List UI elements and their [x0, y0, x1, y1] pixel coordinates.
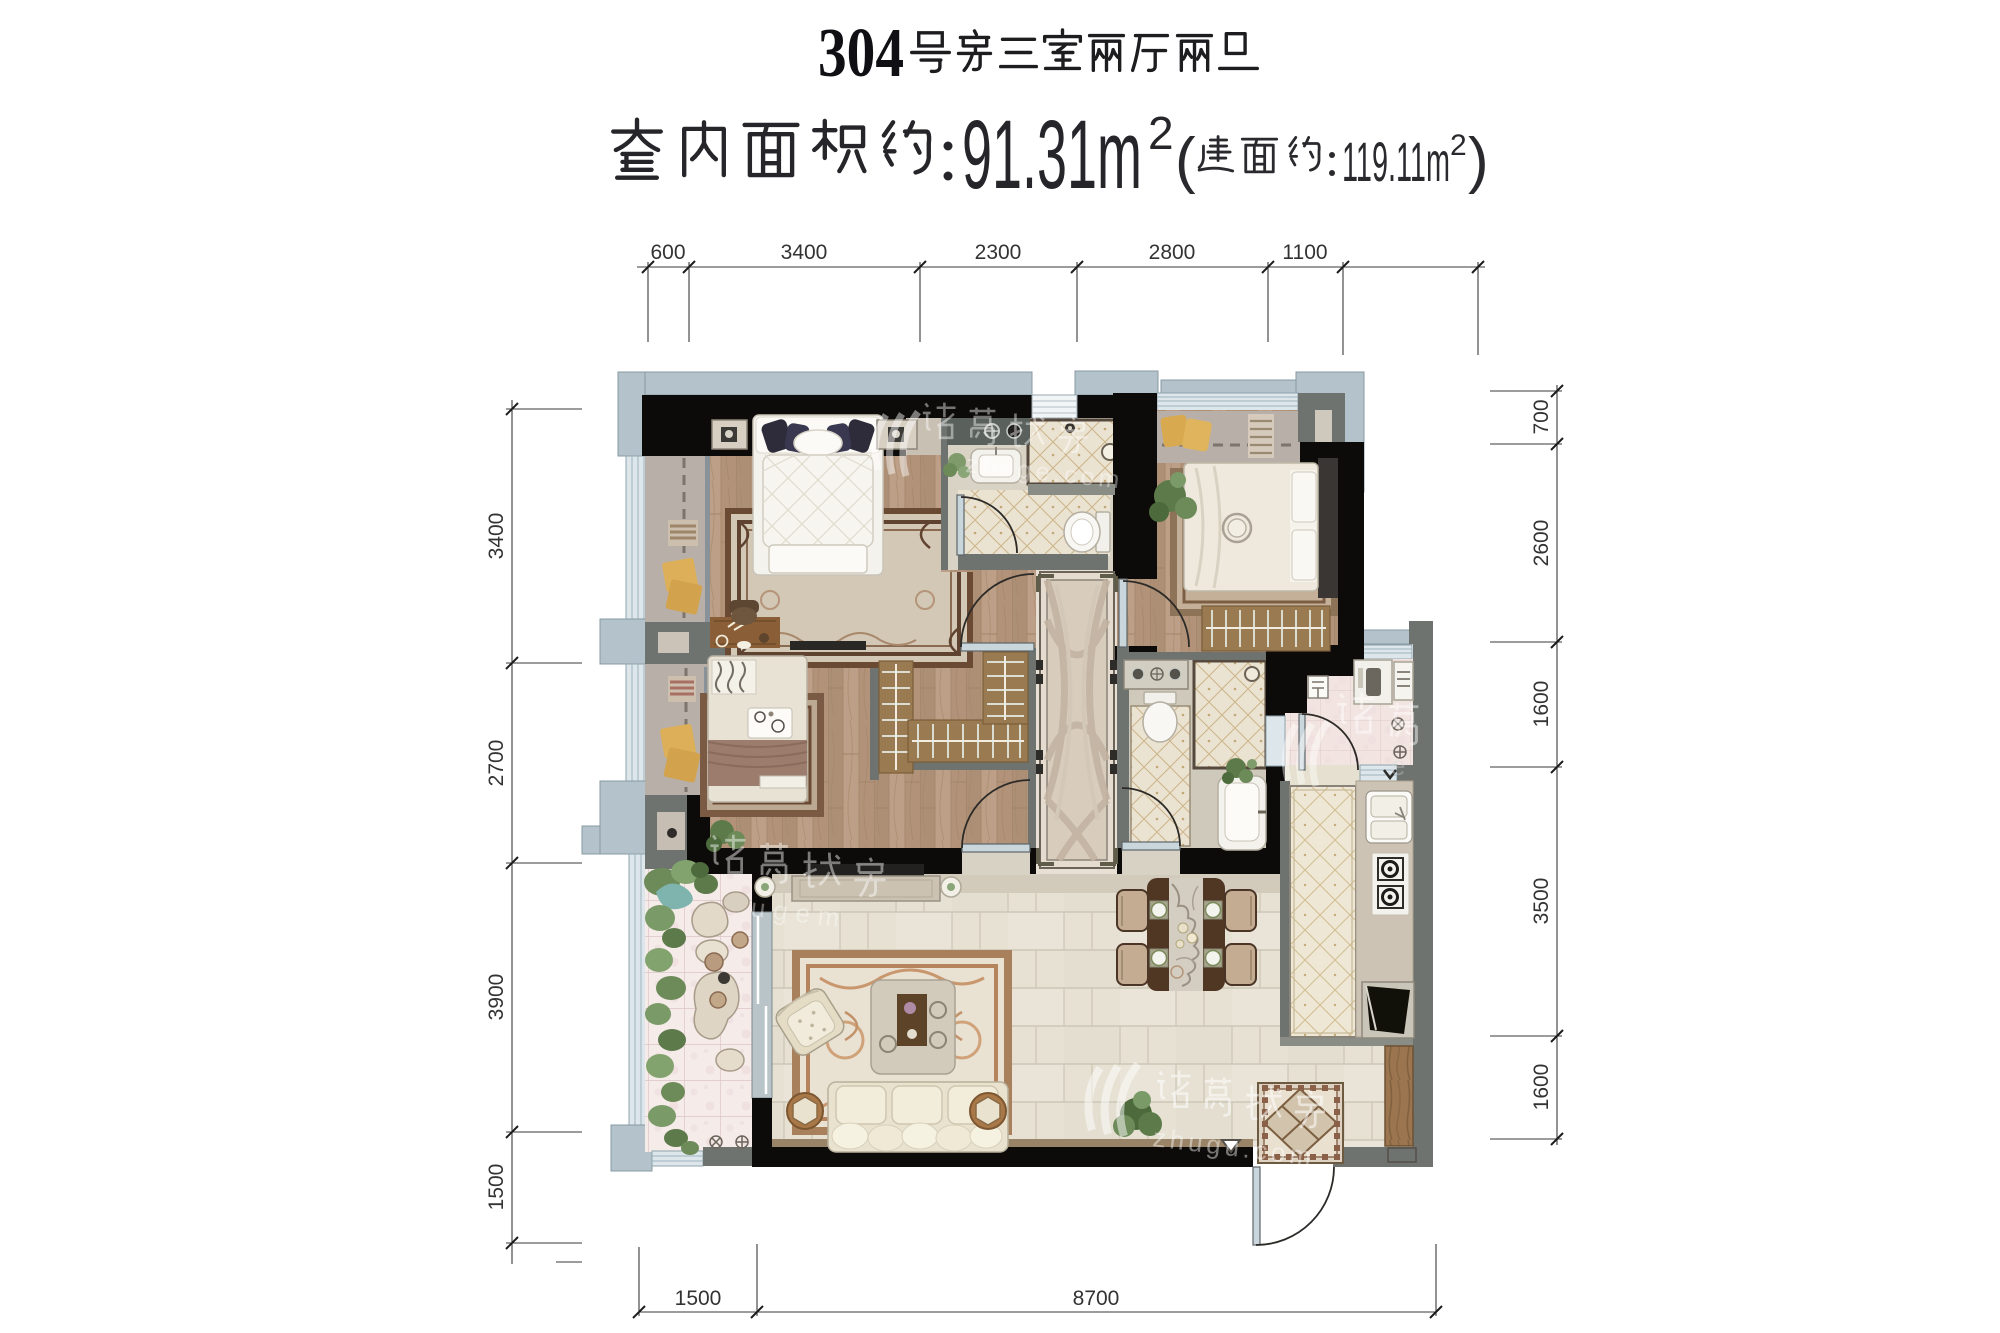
svg-text:1600: 1600: [1530, 681, 1553, 728]
svg-text:2: 2: [1450, 129, 1467, 162]
svg-text:2300: 2300: [975, 241, 1022, 264]
svg-text:3400: 3400: [485, 513, 508, 560]
svg-text:91.31m: 91.31m: [962, 100, 1142, 209]
svg-text:1500: 1500: [675, 1287, 722, 1310]
svg-text:2600: 2600: [1530, 520, 1553, 567]
svg-text:1600: 1600: [1530, 1064, 1553, 1111]
svg-text:1500: 1500: [485, 1164, 508, 1211]
svg-text:8700: 8700: [1073, 1287, 1120, 1310]
svg-text:2: 2: [1148, 107, 1174, 159]
svg-text:3500: 3500: [1530, 878, 1553, 925]
svg-text:304: 304: [818, 15, 904, 92]
svg-text:2800: 2800: [1149, 241, 1196, 264]
svg-text:1100: 1100: [1282, 241, 1327, 264]
svg-text:(: (: [1175, 126, 1196, 195]
svg-text:600: 600: [650, 241, 685, 264]
svg-text:119.11m: 119.11m: [1342, 130, 1450, 193]
svg-text:2700: 2700: [485, 740, 508, 787]
svg-text:): ): [1468, 126, 1489, 195]
svg-text:3900: 3900: [485, 974, 508, 1021]
svg-text:700: 700: [1530, 399, 1553, 434]
svg-text:e: e: [1390, 750, 1406, 781]
svg-text:3400: 3400: [781, 241, 828, 264]
